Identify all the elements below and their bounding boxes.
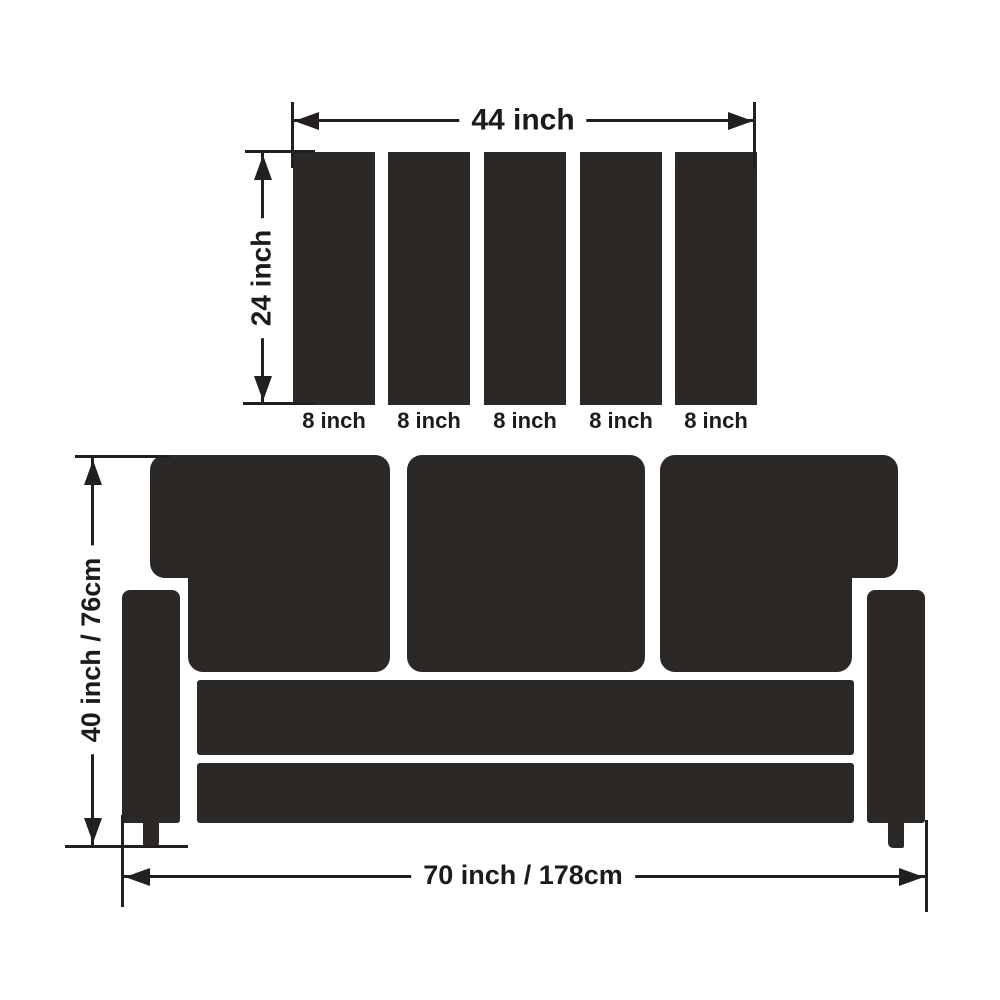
slat-width-label-2: 8 inch: [391, 409, 467, 433]
slat-width-label-3: 8 inch: [487, 409, 563, 433]
dimension-arrow-right-icon: [728, 112, 753, 130]
dimension-arrow-up-icon: [254, 155, 272, 180]
dimension-arrow-left-icon: [125, 868, 150, 886]
slat-width-label-5: 8 inch: [678, 409, 754, 433]
dimension-arrow-up-icon: [84, 460, 102, 485]
dimension-arrow-down-icon: [254, 376, 272, 401]
seat-slat-1: [293, 152, 375, 405]
slat-width-label-1: 8 inch: [296, 409, 372, 433]
back-cushion-middle: [407, 455, 645, 672]
sofa-dimension-diagram: 8 inch 8 inch 8 inch 8 inch 8 inch 44 in…: [0, 0, 1000, 1000]
dimension-tick-top: [75, 455, 170, 458]
sofa-width-label: 70 inch / 178cm: [411, 861, 635, 891]
back-cushion-right-wing: [748, 455, 898, 578]
dimension-tick-left: [121, 815, 124, 907]
seat-band: [197, 680, 854, 755]
top-width-label: 44 inch: [459, 104, 586, 137]
back-cushion-left: [188, 455, 390, 672]
seat-slat-3: [484, 152, 566, 405]
dimension-tick-top: [245, 150, 315, 153]
armrest-left: [122, 590, 180, 823]
dimension-tick-bottom: [65, 845, 188, 848]
sofa-leg-right: [888, 823, 904, 848]
dimension-arrow-left-icon: [294, 112, 319, 130]
dimension-arrow-down-icon: [84, 818, 102, 843]
dimension-tick-bottom: [243, 402, 315, 405]
top-depth-label: 24 inch: [247, 218, 278, 338]
dimension-arrow-right-icon: [899, 868, 924, 886]
armrest-right: [867, 590, 925, 823]
sofa-height-label: 40 inch / 76cm: [77, 546, 107, 755]
seat-slat-5: [675, 152, 757, 405]
seat-slat-2: [388, 152, 470, 405]
seat-slat-4: [580, 152, 662, 405]
dimension-tick-right: [753, 102, 756, 169]
slat-width-label-4: 8 inch: [583, 409, 659, 433]
dimension-tick-right: [925, 820, 928, 912]
base-band: [197, 763, 854, 823]
